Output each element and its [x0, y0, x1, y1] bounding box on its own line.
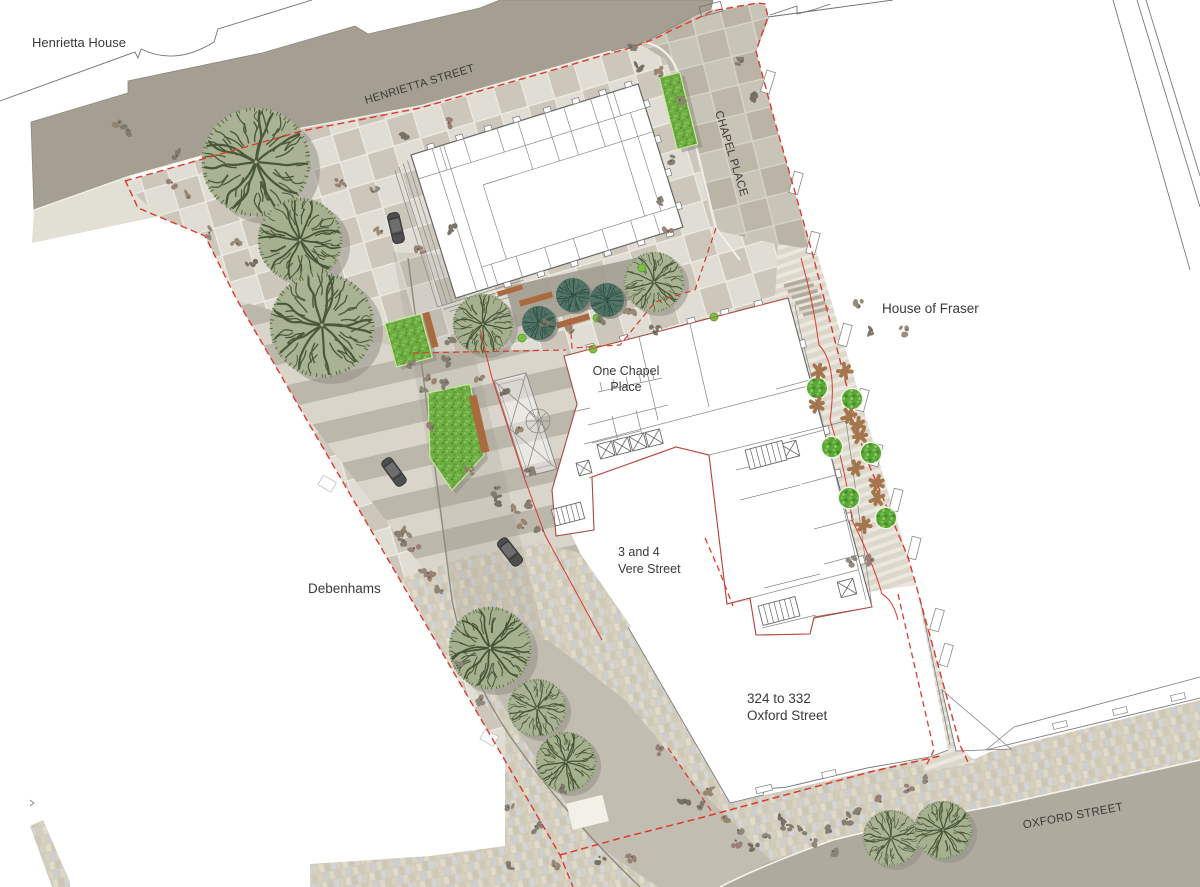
svg-text:3 and 4: 3 and 4	[618, 545, 660, 559]
svg-text:House of Fraser: House of Fraser	[882, 301, 979, 316]
svg-text:Henrietta House: Henrietta House	[32, 35, 126, 50]
svg-text:324 to 332: 324 to 332	[747, 691, 811, 706]
svg-text:One Chapel: One Chapel	[593, 364, 660, 378]
svg-text:Debenhams: Debenhams	[308, 581, 381, 596]
svg-text:Oxford Street: Oxford Street	[747, 708, 828, 723]
svg-text:Place: Place	[610, 380, 641, 394]
svg-text:Vere Street: Vere Street	[618, 562, 681, 576]
